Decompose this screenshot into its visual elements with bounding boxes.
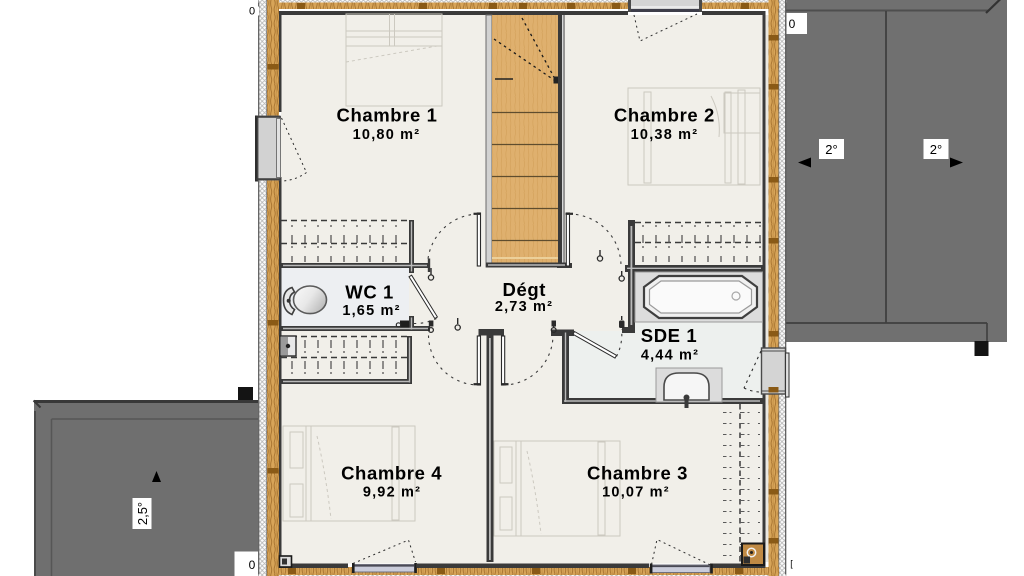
- svg-text:2°: 2°: [825, 142, 837, 157]
- svg-text:9,92 m²: 9,92 m²: [363, 484, 421, 500]
- svg-text:SDE 1: SDE 1: [641, 325, 697, 346]
- svg-text:10,38 m²: 10,38 m²: [631, 127, 699, 143]
- svg-text:1,65 m²: 1,65 m²: [342, 303, 400, 319]
- svg-text:0: 0: [249, 558, 256, 572]
- svg-text:Chambre 3: Chambre 3: [587, 462, 688, 483]
- svg-text:10,80 m²: 10,80 m²: [353, 127, 421, 143]
- svg-text:0: 0: [789, 17, 796, 31]
- svg-text:Chambre 4: Chambre 4: [341, 462, 442, 483]
- svg-text:Dégt: Dégt: [503, 279, 547, 300]
- svg-text:WC 1: WC 1: [345, 281, 394, 302]
- svg-text:2,5°: 2,5°: [135, 502, 150, 525]
- svg-text:0: 0: [249, 6, 255, 18]
- svg-text:2,73 m²: 2,73 m²: [495, 299, 553, 315]
- svg-text:10,07 m²: 10,07 m²: [602, 484, 670, 500]
- svg-text:Chambre 2: Chambre 2: [614, 105, 715, 126]
- svg-text:4,44 m²: 4,44 m²: [641, 348, 699, 364]
- svg-text:Chambre 1: Chambre 1: [336, 105, 437, 126]
- svg-text:2°: 2°: [930, 142, 942, 157]
